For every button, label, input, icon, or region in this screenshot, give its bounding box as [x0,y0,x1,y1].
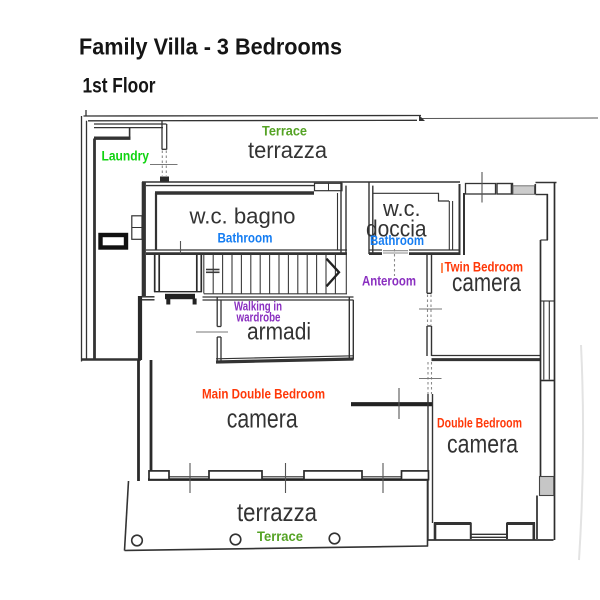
svg-text:armadi: armadi [247,319,311,346]
svg-text:Laundry: Laundry [102,147,150,163]
svg-text:Bathroom: Bathroom [218,230,273,246]
svg-text:Terrace: Terrace [257,528,303,544]
svg-text:Family Villa - 3 Bedrooms: Family Villa - 3 Bedrooms [79,34,342,60]
svg-text:camera: camera [452,267,521,297]
svg-text:w.c. bagno: w.c. bagno [188,204,295,229]
svg-text:Bathroom: Bathroom [370,232,424,248]
svg-text:Anteroom: Anteroom [362,273,416,289]
svg-text:terrazza: terrazza [237,497,317,527]
svg-text:1st Floor: 1st Floor [83,74,157,98]
svg-text:camera: camera [227,406,299,434]
svg-text:Main Double Bedroom: Main Double Bedroom [202,386,325,402]
svg-text:camera: camera [447,429,518,459]
svg-text:terrazza: terrazza [248,137,327,163]
